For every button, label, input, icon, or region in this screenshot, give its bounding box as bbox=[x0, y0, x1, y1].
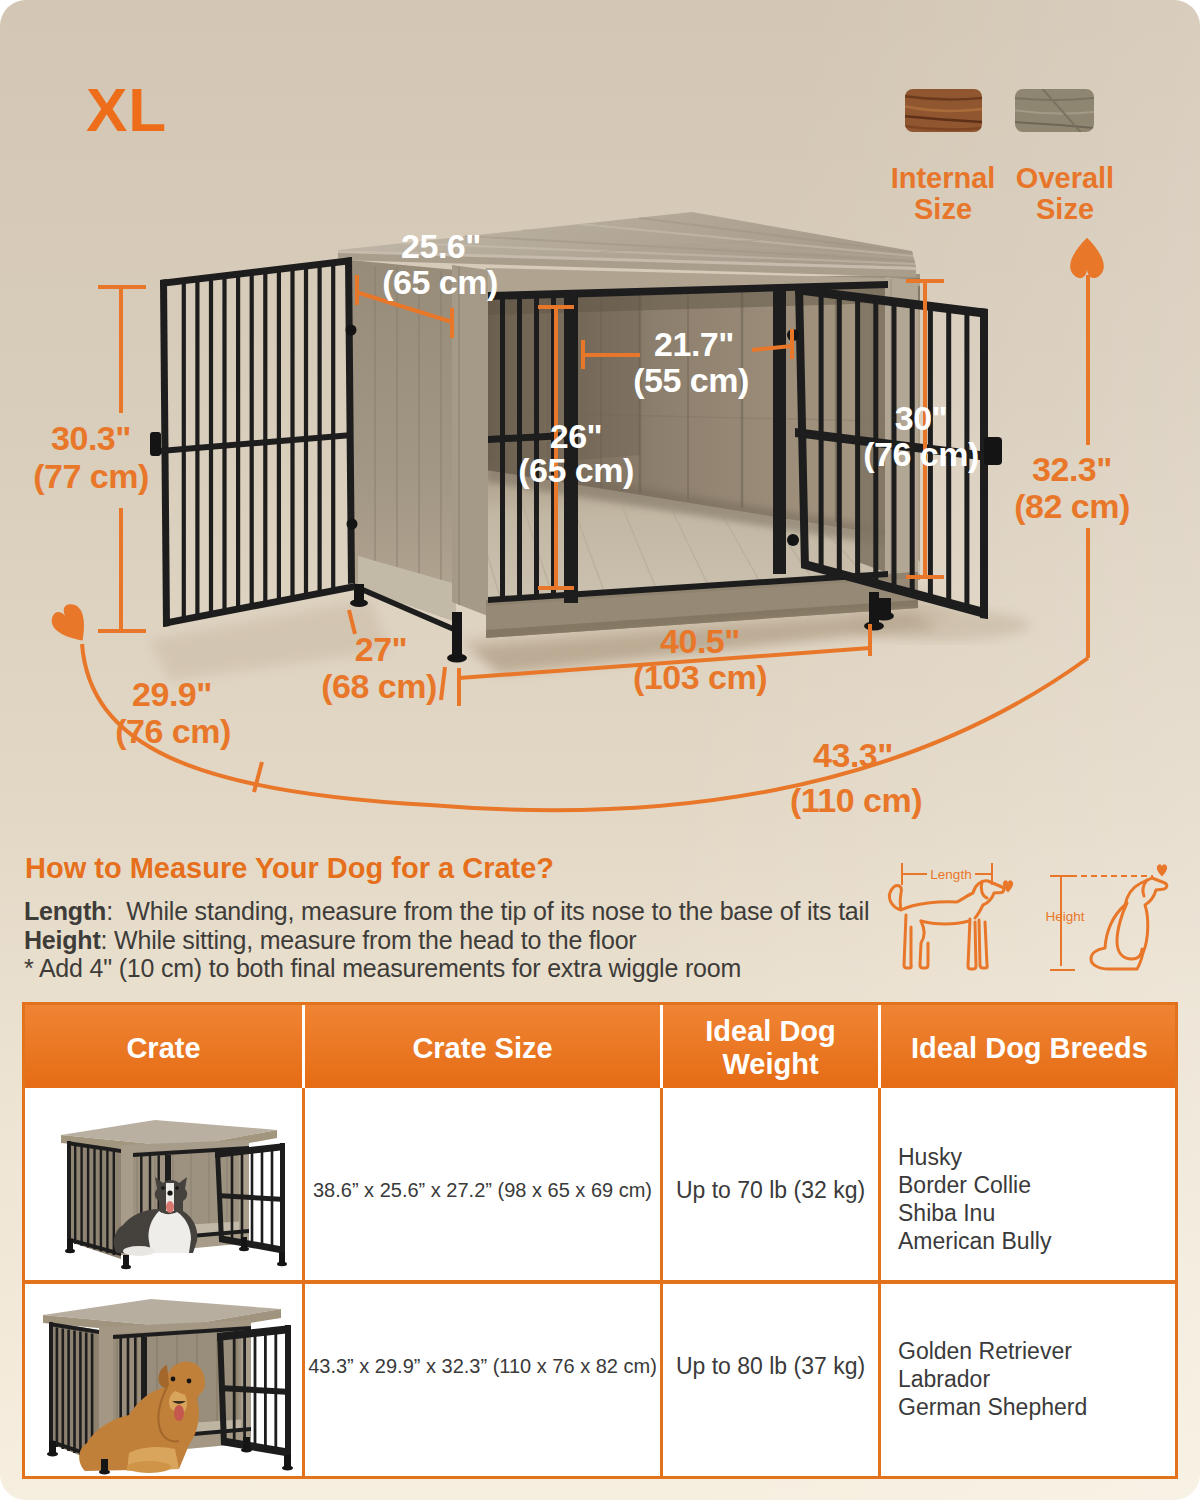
svg-text:Length: Length bbox=[930, 867, 971, 882]
svg-text:Height: Height bbox=[1045, 909, 1084, 924]
